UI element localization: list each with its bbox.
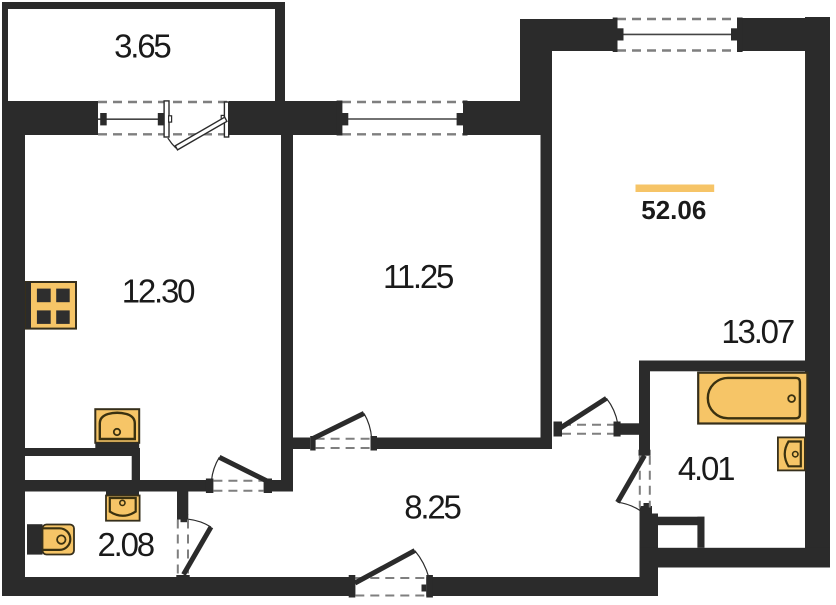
svg-text:8.25: 8.25 [404,488,460,525]
svg-text:13.07: 13.07 [721,313,793,350]
svg-text:3.65: 3.65 [114,28,170,65]
svg-text:52.06: 52.06 [641,195,706,225]
svg-text:11.25: 11.25 [383,258,453,295]
svg-text:12.30: 12.30 [122,272,195,309]
svg-text:2.08: 2.08 [97,526,153,563]
svg-text:4.01: 4.01 [678,450,734,487]
